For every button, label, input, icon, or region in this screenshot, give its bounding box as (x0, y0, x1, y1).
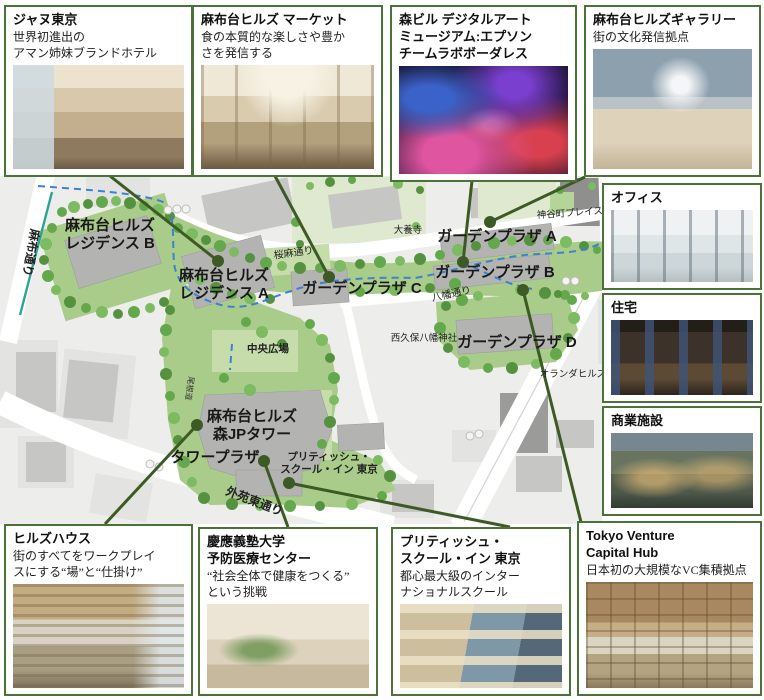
tree-icon (441, 301, 451, 311)
photo-commercial (611, 433, 753, 508)
tree-icon (198, 492, 210, 504)
tree-icon (201, 235, 211, 245)
label-british-school-map: プリティッシュ・スクール・イン 東京 (280, 450, 378, 476)
photo-market (201, 65, 374, 169)
photo-gallery (593, 49, 752, 169)
azabudai-hills-map-infographic: 麻布台ヒルズレジデンス B麻布台ヒルズレジデンス Aガーデンプラザ Aガーデンプ… (0, 0, 764, 700)
leader-hillshouse-dot (191, 419, 203, 431)
label-central-square: 中央広場 (247, 342, 289, 355)
tree-icon (355, 259, 365, 269)
callout-title: 森ビル デジタルアート ミュージアム:エプソン チームラボボーダレス (399, 11, 568, 62)
tree-icon (165, 391, 175, 401)
photo-office (611, 210, 753, 282)
tree-icon (159, 297, 169, 307)
callout-title: オフィス (611, 189, 753, 206)
tree-icon (416, 186, 424, 194)
label-nishikubo-hachiman-shrine: 西久保八幡神社 (391, 332, 458, 344)
callout-title: ジャヌ東京 (13, 11, 184, 28)
callout-azabudai-hills-gallery[interactable]: 麻布台ヒルズギャラリー 街の文化発信拠点 (584, 5, 761, 177)
tree-icon (168, 412, 180, 424)
tree-icon (374, 256, 386, 268)
callout-title: 商業施設 (611, 412, 753, 429)
tree-icon (113, 309, 123, 319)
callout-british-school-in-tokyo[interactable]: プリティッシュ・ スクール・イン 東京 都心最大級のインター ナショナルスクール (391, 527, 571, 696)
callout-title: プリティッシュ・ スクール・イン 東京 (400, 533, 562, 567)
tree-icon (81, 303, 91, 313)
tree-icon (214, 240, 226, 252)
label-garden-plaza-c: ガーデンプラザ C (302, 279, 422, 297)
photo-keio-center (207, 604, 369, 688)
tree-icon (346, 498, 358, 510)
leader-school-dot (283, 477, 295, 489)
leader-vch-dot (517, 284, 529, 296)
tree-icon (567, 295, 577, 305)
tree-icon (219, 373, 229, 383)
callout-title: 慶應義塾大学 予防医療センター (207, 533, 369, 567)
tree-icon (245, 253, 255, 263)
tree-icon (40, 238, 52, 250)
label-garden-plaza-d: ガーデンプラザ D (457, 333, 577, 351)
leader-keio-dot (258, 455, 270, 467)
tree-icon (554, 290, 562, 298)
callout-commercial-facility[interactable]: 商業施設 (602, 406, 762, 516)
tree-icon (229, 247, 239, 257)
tree-icon (329, 395, 339, 405)
tree-icon (483, 363, 493, 373)
tree-icon (160, 368, 172, 380)
leader-gallery-dot (484, 216, 496, 228)
tree-icon (324, 416, 336, 428)
tree-icon (294, 262, 306, 274)
tree-icon (47, 223, 57, 233)
tree-icon (111, 196, 121, 206)
tree-icon (165, 305, 175, 315)
callout-title: 住宅 (611, 299, 753, 316)
callout-desc: 世界初進出の アマン姉妹ブランドホテル (13, 29, 184, 61)
callout-desc: 食の本質的な楽しさや豊か さを発信する (201, 29, 374, 61)
tree-icon (256, 326, 268, 338)
tree-icon (328, 372, 340, 384)
photo-venture-capital-hub (586, 582, 753, 688)
tree-icon (306, 182, 314, 190)
callout-residence[interactable]: 住宅 (602, 293, 762, 403)
callout-desc: “社会全体で健康をつくる” という挑戦 (207, 568, 369, 600)
callout-hills-house[interactable]: ヒルズハウス 街のすべてをワークプレイ スにする“場”と“仕掛け” (4, 524, 193, 696)
tree-icon (305, 319, 315, 329)
tree-icon (51, 285, 61, 295)
photo-teamlab-borderless (399, 66, 568, 174)
tree-icon (414, 253, 426, 265)
tree-icon (443, 343, 453, 353)
tree-icon (96, 306, 108, 318)
callout-janu-tokyo[interactable]: ジャヌ東京 世界初進出の アマン姉妹ブランドホテル (4, 5, 193, 177)
tree-icon (128, 306, 140, 318)
tree-icon (96, 196, 108, 208)
tree-icon (244, 384, 256, 396)
label-taiyoji: 大養寺 (394, 224, 423, 236)
callout-keio-preventive-medicine-center[interactable]: 慶應義塾大学 予防医療センター “社会全体で健康をつくる” という挑戦 (198, 527, 378, 696)
tree-icon (560, 236, 572, 248)
callout-title: 麻布台ヒルズギャラリー (593, 11, 752, 28)
callout-title: ヒルズハウス (13, 530, 184, 547)
tree-icon (384, 470, 396, 482)
callout-title: Tokyo Venture Capital Hub (586, 527, 753, 561)
callout-office[interactable]: オフィス (602, 183, 762, 290)
tree-icon (539, 287, 551, 299)
callout-desc: 街のすべてをワークプレイ スにする“場”と“仕掛け” (13, 548, 184, 580)
leader-janu-dot (212, 255, 224, 267)
tree-icon (284, 500, 296, 512)
tree-icon (435, 250, 445, 260)
photo-british-school (400, 604, 562, 688)
tree-icon (187, 477, 197, 487)
callout-tokyo-venture-capital-hub[interactable]: Tokyo Venture Capital Hub 日本初の大規模なVC集積拠点 (577, 521, 762, 696)
photo-hills-house (13, 584, 184, 688)
tree-icon (348, 176, 356, 184)
tree-icon (124, 197, 136, 209)
tree-icon (334, 260, 346, 272)
tree-icon (506, 362, 518, 374)
tree-icon (581, 292, 589, 300)
tree-icon (425, 283, 435, 293)
callout-desc: 日本初の大規模なVC集積拠点 (586, 562, 753, 578)
tree-icon (452, 244, 464, 256)
label-tower-plaza: タワープラザ (170, 449, 259, 466)
callout-desc: 都心最大級のインター ナショナルスクール (400, 568, 562, 600)
tree-icon (241, 317, 251, 327)
label-oranda-hills: オランダヒルズ (540, 368, 607, 380)
label-garden-plaza-a: ガーデンプラザ A (437, 227, 557, 245)
callout-desc: 街の文化発信拠点 (593, 29, 752, 45)
tree-icon (160, 324, 172, 336)
callout-azabudai-hills-market[interactable]: 麻布台ヒルズ マーケット 食の本質的な楽しさや豊か さを発信する (192, 5, 383, 177)
tree-icon (395, 256, 405, 266)
tree-icon (568, 312, 580, 324)
tree-icon (315, 501, 325, 511)
tree-icon (83, 199, 93, 209)
tree-icon (277, 261, 287, 271)
photo-residence (611, 320, 753, 395)
tree-icon (159, 347, 169, 357)
tree-icon (42, 270, 54, 282)
tree-icon (64, 296, 76, 308)
tree-icon (316, 334, 328, 346)
label-garden-plaza-b: ガーデンプラザ B (435, 263, 555, 281)
tree-icon (473, 291, 483, 301)
tree-icon (317, 439, 327, 449)
tree-icon (325, 353, 335, 363)
tree-icon (57, 207, 67, 217)
tree-icon (145, 303, 155, 313)
tree-icon (39, 255, 49, 265)
tree-icon (588, 182, 596, 190)
tree-icon (458, 356, 470, 368)
callout-title: 麻布台ヒルズ マーケット (201, 11, 374, 28)
callout-digital-art-museum[interactable]: 森ビル デジタルアート ミュージアム:エプソン チームラボボーダレス (390, 5, 577, 182)
tree-icon (68, 201, 80, 213)
tree-icon (325, 177, 335, 187)
photo-janu-tokyo (13, 65, 184, 169)
